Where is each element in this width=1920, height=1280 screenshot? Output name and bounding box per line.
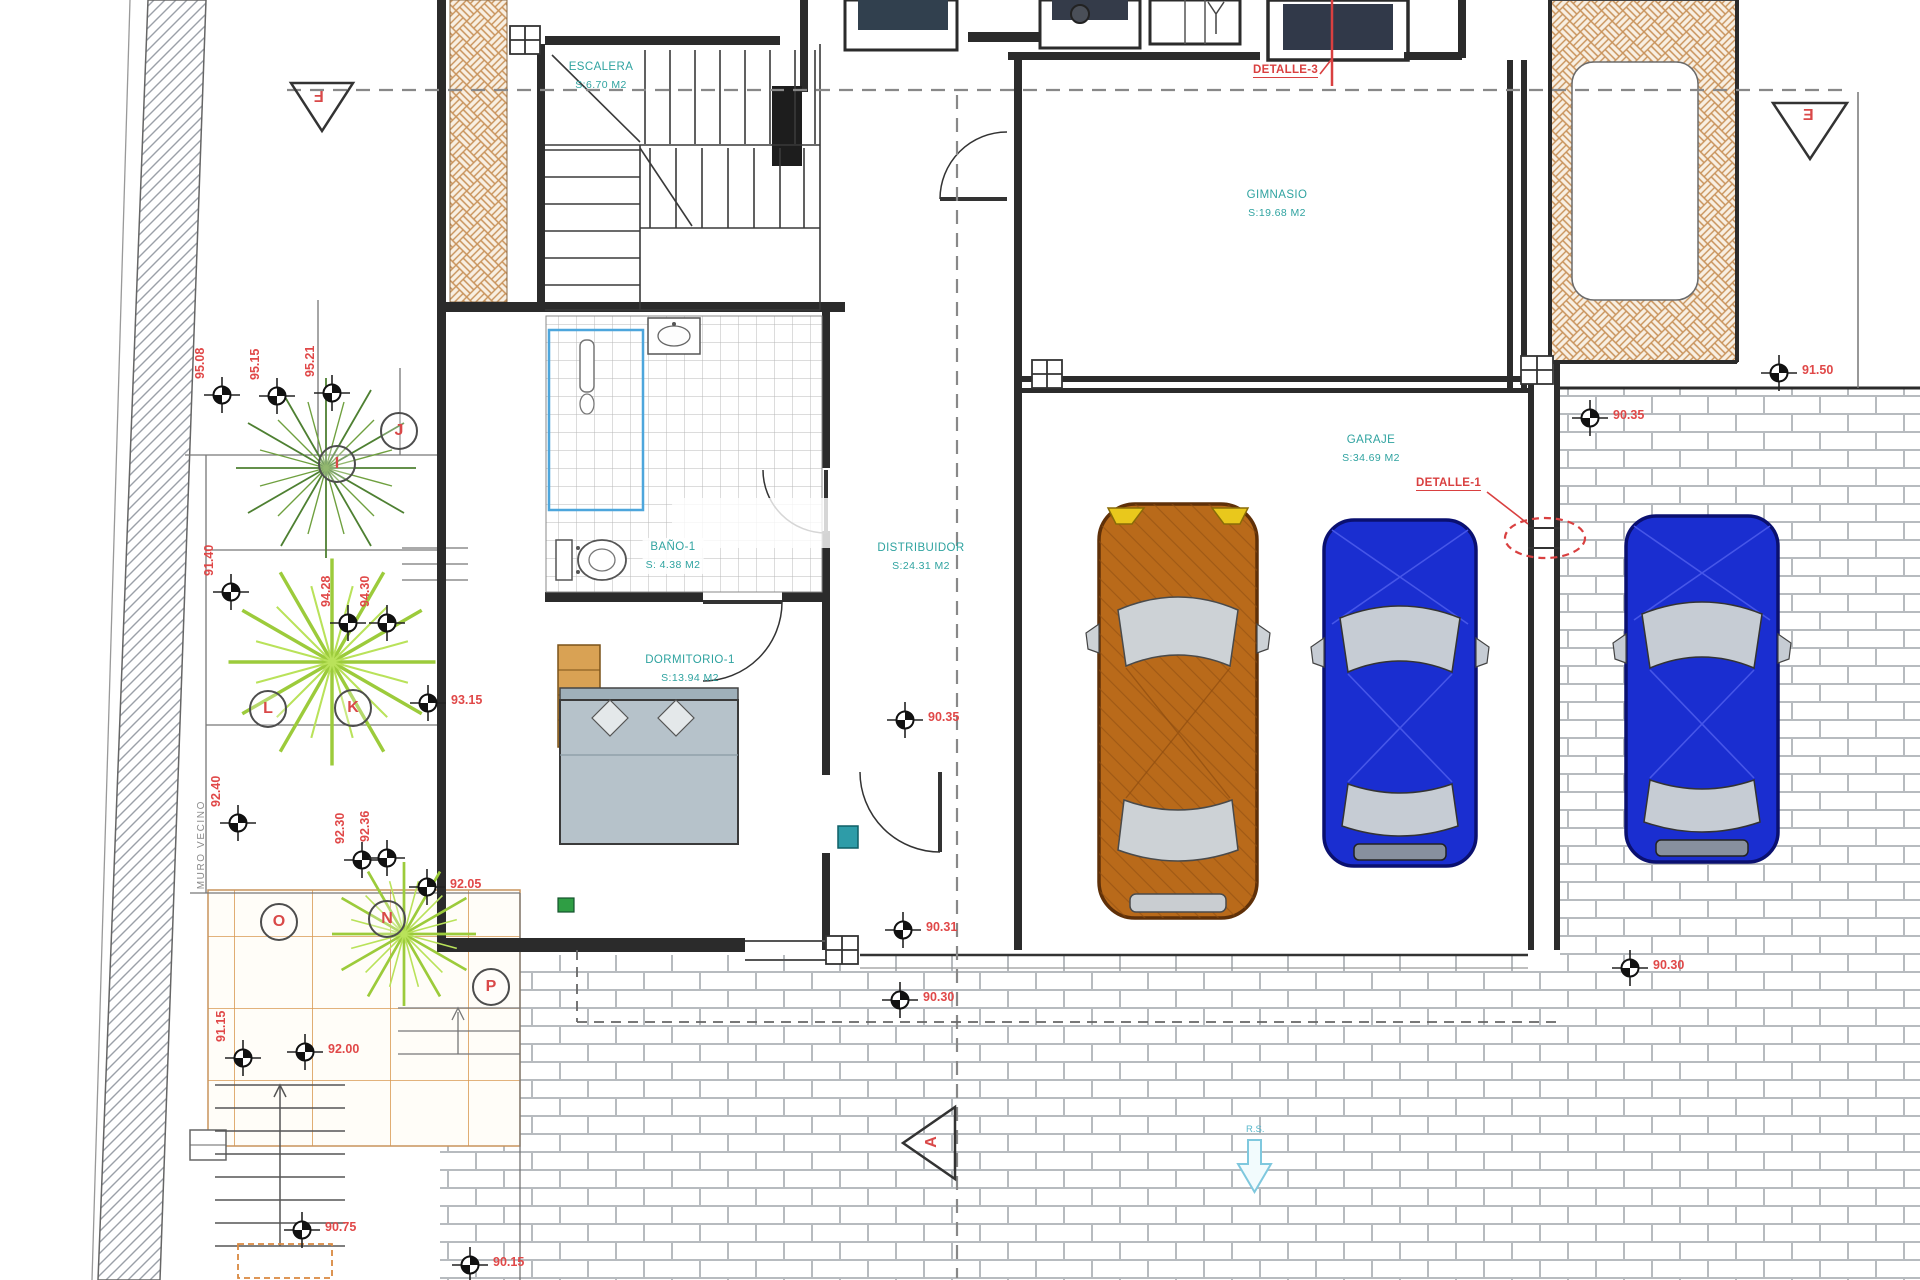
elevation-value: 92.40 <box>209 776 223 807</box>
elevation-value: 92.30 <box>333 813 347 844</box>
shower <box>549 330 643 510</box>
elevation-value: 92.36 <box>358 811 372 842</box>
dashed-orange-box <box>238 1244 332 1278</box>
elevation-value: 92.00 <box>328 1042 359 1056</box>
survey-marker-icon <box>409 869 445 905</box>
survey-marker-icon <box>1572 400 1608 436</box>
room-label-dormitorio: DORMITORIO-1S:13.94 M2 <box>645 652 735 686</box>
car-orange <box>1086 504 1270 918</box>
roof-top-rooms <box>845 0 1408 60</box>
survey-marker-icon <box>1612 950 1648 986</box>
circle-letter-j: J <box>380 412 418 450</box>
survey-marker-icon <box>1761 355 1797 391</box>
survey-marker-icon <box>369 840 405 876</box>
survey-marker-icon <box>885 912 921 948</box>
room-area: S:34.69 M2 <box>1342 450 1400 466</box>
room-label-gimnasio: GIMNASIOS:19.68 M2 <box>1247 187 1308 221</box>
survey-marker-icon <box>452 1247 488 1280</box>
elevation-marker: 91.50 <box>1761 355 1797 391</box>
survey-marker-icon <box>213 574 249 610</box>
room-label-bano: BAÑO-1S: 4.38 M2 <box>643 538 704 574</box>
room-area: S:6.70 M2 <box>569 77 634 93</box>
elevation-value: 90.35 <box>928 710 959 724</box>
elevation-marker: 93.15 <box>410 685 446 721</box>
elevation-marker: 90.31 <box>885 912 921 948</box>
room-label-distribuidor: DISTRIBUIDORS:24.31 M2 <box>877 540 964 574</box>
elevation-value: 94.30 <box>358 576 372 607</box>
elevation-marker: 95.15 <box>259 378 295 414</box>
survey-marker-icon <box>410 685 446 721</box>
room-name: DORMITORIO-1 <box>645 652 735 670</box>
survey-marker-icon <box>887 702 923 738</box>
detail-3-leader <box>1320 60 1331 74</box>
elevation-marker: 92.40 <box>220 805 256 841</box>
circle-letter-n: N <box>368 900 406 938</box>
elevation-value: 94.28 <box>319 576 333 607</box>
green-utility-box <box>558 898 574 912</box>
elevation-marker: 91.15 <box>225 1040 261 1076</box>
elevation-value: 91.50 <box>1802 363 1833 377</box>
room-label-escalera: ESCALERAS:6.70 M2 <box>569 59 634 93</box>
survey-marker-icon <box>287 1034 323 1070</box>
elevation-value: 90.31 <box>926 920 957 934</box>
survey-marker-icon <box>882 982 918 1018</box>
circle-letter-l: L <box>249 690 287 728</box>
detail-1-leader <box>1487 492 1528 524</box>
survey-marker-icon <box>330 605 366 641</box>
elevation-marker: 90.15 <box>452 1247 488 1280</box>
section-letter-f: F <box>314 86 324 104</box>
survey-marker-icon <box>369 605 405 641</box>
floor-plan-drawing <box>0 0 1920 1280</box>
elevation-value: 95.15 <box>248 349 262 380</box>
section-marker-a: A <box>898 1104 958 1182</box>
section-letter-e: E <box>1803 107 1814 125</box>
elevation-marker: 92.00 <box>287 1034 323 1070</box>
elevation-value: 92.05 <box>450 877 481 891</box>
elevation-value: 91.40 <box>202 545 216 576</box>
survey-marker-icon <box>204 377 240 413</box>
elevation-marker: 94.30 <box>369 605 405 641</box>
detail-3-label: DETALLE-3 <box>1253 64 1318 78</box>
elevation-marker: 92.36 <box>369 840 405 876</box>
elevation-value: 93.15 <box>451 693 482 707</box>
neighbor-wall-label: MURO VECINO <box>196 800 207 889</box>
circle-letter-k: K <box>334 689 372 727</box>
elevation-marker: 90.35 <box>1572 400 1608 436</box>
circle-letter-i: I <box>318 445 356 483</box>
elevation-value: 91.15 <box>214 1011 228 1042</box>
elevation-value: 95.08 <box>193 348 207 379</box>
room-name: GARAJE <box>1342 432 1400 450</box>
section-marker-f: F <box>288 80 356 134</box>
elevation-marker: 92.05 <box>409 869 445 905</box>
elevation-marker: 90.35 <box>887 702 923 738</box>
section-marker-e: E <box>1770 100 1850 162</box>
toilet-icon <box>556 540 626 580</box>
teal-utility-box <box>838 826 858 848</box>
room-name: GIMNASIO <box>1247 187 1308 205</box>
elevation-value: 90.75 <box>325 1220 356 1234</box>
elevation-marker: 90.30 <box>882 982 918 1018</box>
room-name: BAÑO-1 <box>646 539 701 557</box>
circle-letter-o: O <box>260 903 298 941</box>
room-area: S: 4.38 M2 <box>646 557 701 573</box>
hatched-planter-top-right <box>1550 0 1737 362</box>
elevation-value: 90.30 <box>923 990 954 1004</box>
elevation-marker: 90.30 <box>1612 950 1648 986</box>
survey-marker-icon <box>314 375 350 411</box>
elevation-marker: 90.75 <box>284 1212 320 1248</box>
room-area: S:19.68 M2 <box>1247 205 1308 221</box>
survey-marker-icon <box>259 378 295 414</box>
bed <box>560 688 738 844</box>
survey-marker-icon <box>225 1040 261 1076</box>
rs-label: R.S. <box>1246 1124 1264 1135</box>
room-name: DISTRIBUIDOR <box>877 540 964 558</box>
car-blue-exterior <box>1613 516 1791 862</box>
elevation-marker: 95.21 <box>314 375 350 411</box>
detail-1-label: DETALLE-1 <box>1416 477 1481 491</box>
room-label-garaje: GARAJES:34.69 M2 <box>1342 432 1400 466</box>
watermark <box>672 498 910 548</box>
elevation-marker: 94.28 <box>330 605 366 641</box>
elevation-marker: 91.40 <box>213 574 249 610</box>
elevation-value: 90.30 <box>1653 958 1684 972</box>
section-letter-a: A <box>923 1136 941 1148</box>
room-area: S:13.94 M2 <box>645 670 735 686</box>
hatched-planter-left <box>450 0 507 302</box>
elevation-value: 90.15 <box>493 1255 524 1269</box>
survey-marker-icon <box>220 805 256 841</box>
circle-letter-p: P <box>472 968 510 1006</box>
elevation-value: 90.35 <box>1613 408 1644 422</box>
floor-plan-canvas: DETALLE-1 DETALLE-3 MURO VECINO R.S. F E… <box>0 0 1920 1280</box>
shower-column-icon <box>580 340 594 392</box>
room-area: S:24.31 M2 <box>877 558 964 574</box>
elevation-marker: 95.08 <box>204 377 240 413</box>
survey-marker-icon <box>284 1212 320 1248</box>
room-name: ESCALERA <box>569 59 634 77</box>
car-blue-garage <box>1311 520 1489 866</box>
elevation-value: 95.21 <box>303 346 317 377</box>
